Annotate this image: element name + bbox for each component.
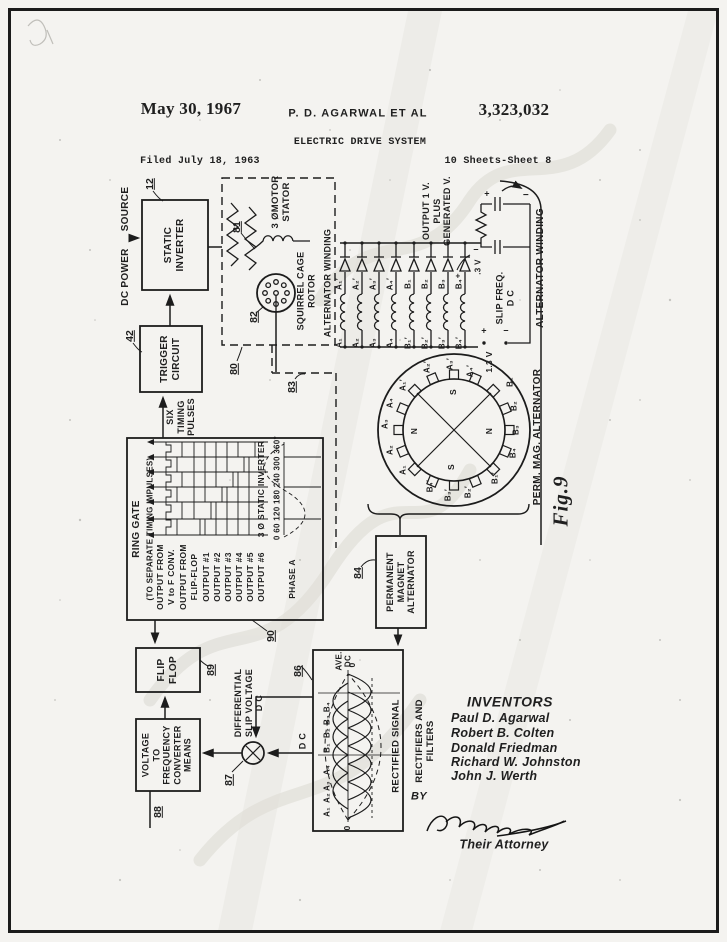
coil-bottom-label: A₄	[385, 338, 394, 348]
rotor-pole-label: B₃′	[443, 489, 452, 501]
wave-phase-label: A₁	[322, 807, 331, 817]
ref-90: 90	[265, 630, 277, 642]
plus-sign: +	[456, 271, 461, 280]
zero-mark: 0	[347, 662, 357, 667]
rotor-pole-label: A₃	[380, 419, 389, 429]
differential-slip-voltage-label: DIFFERENTIAL SLIP VOLTAGE D C	[233, 669, 265, 738]
wave-phase-label: B₂	[322, 728, 331, 738]
output-trace-label: OUTPUT #4	[234, 552, 244, 601]
coil-bottom-label: B₂′	[420, 337, 429, 349]
rotor-pole-label: A₃′	[445, 358, 454, 370]
wave-phase-label: A₃	[322, 781, 331, 791]
rotor-pole-label: B₂′	[463, 486, 472, 498]
plus-sign: +	[481, 326, 487, 337]
wave-phase-label: B₁	[322, 743, 331, 753]
output-voltage-label: OUTPUT 1 V. PLUS GENERATED V.	[421, 176, 453, 246]
rotor-pole-label: A₂′	[422, 361, 431, 373]
point-three-volt-label: .3 V	[473, 259, 482, 274]
zero-mark: 0	[342, 825, 352, 830]
trigger-circuit-box-label: TRIGGER CIRCUIT	[159, 335, 183, 383]
wave-phase-label: A₄	[322, 765, 331, 775]
coil-bottom-label: A₃	[368, 338, 377, 348]
one-point-three-volt-label: 1.3 V	[484, 351, 494, 372]
rotor-pole-label: A₄′	[465, 365, 474, 377]
plus-sign: +	[484, 189, 490, 200]
inventor-name: Robert B. Colten	[451, 726, 554, 741]
coil-top-label: B₃	[437, 279, 446, 289]
rotor-pole-label: B₂	[509, 401, 518, 411]
wave-phase-label: B₄	[322, 702, 331, 712]
perm-mag-alternator-label: PERM. MAG. ALTERNATOR	[532, 369, 544, 505]
output-trace-label: OUTPUT #1	[201, 552, 211, 601]
rotor-pole-label: B₁	[505, 377, 514, 387]
patent-number: 3,323,032	[479, 100, 550, 120]
rotor-pole-label: B₄′	[425, 480, 434, 492]
rotor-pole-label: A₂	[385, 445, 394, 455]
dc-label: D C	[298, 733, 309, 749]
vf-converter-box-label: VOLTAGE TO FREQUENCY CONVERTER MEANS	[140, 725, 193, 784]
coil-bottom-label: A₁	[334, 338, 343, 348]
inventor-name-header: P. D. AGARWAL ET AL	[288, 108, 427, 121]
alternator-winding-right-label: ALTERNATOR WINDING	[535, 208, 547, 328]
degree-scale: 0 60 120 180 240 300 360°	[272, 436, 281, 540]
trace-row-label: FLIP-FLOP	[189, 554, 199, 601]
sheet-count: 10 Sheets-Sheet 8	[444, 156, 551, 168]
rotor-pole-label: B₄	[508, 448, 517, 458]
ref-86: 86	[292, 665, 304, 677]
coil-top-label: A₄′	[385, 278, 394, 290]
figure-number: Fig.9	[549, 475, 574, 526]
output-trace-label: OUTPUT #2	[212, 552, 222, 601]
magnet-pole-letter: S	[448, 389, 458, 395]
magnet-pole-letter: N	[484, 428, 494, 434]
inventor-name: Paul D. Agarwal	[451, 711, 550, 726]
coil-top-label: B₁	[403, 279, 412, 289]
dc-power-label: DC POWER	[120, 248, 132, 305]
ring-gate-title: RING GATE	[131, 500, 143, 558]
ref-80: 80	[228, 363, 240, 375]
ref-12: 12	[144, 178, 156, 190]
coil-top-label: A₂′	[351, 278, 360, 290]
wave-phase-label: B₃	[322, 715, 331, 725]
ring-gate-subtitle: (TO SEPARATE TIMING IMPULSES)	[145, 458, 154, 601]
static-inverter-box-label: STATIC INVERTER	[163, 219, 187, 272]
coil-bottom-label: A₂	[351, 338, 360, 348]
six-timing-pulses-label: SIX TIMING PULSES	[165, 398, 197, 436]
output-trace-label: OUTPUT #3	[223, 552, 233, 601]
ref-87: 87	[223, 774, 235, 786]
coil-top-label: A₁′	[334, 278, 343, 290]
grant-date: May 30, 1967	[141, 99, 241, 119]
static-inverter-trace-label: 3 Ø STATIC INVERTER	[256, 441, 266, 538]
minus-sign: −	[503, 326, 509, 337]
by-label: BY	[411, 791, 427, 804]
ref-81: 81	[231, 221, 243, 233]
rectifiers-filters-label: RECTIFIERS AND FILTERS	[414, 699, 436, 783]
coil-top-label: B₂	[420, 279, 429, 289]
filed-date: Filed July 18, 1963	[140, 156, 260, 168]
inventors-heading: INVENTORS	[467, 694, 553, 711]
minus-sign: −	[473, 245, 479, 256]
flip-flop-box-label: FLIP FLOP	[156, 656, 180, 684]
slip-freq-label: SLIP FREQ. D C	[494, 272, 515, 325]
coil-bottom-label: B₄′	[454, 337, 463, 349]
squirrel-cage-label: SQUIRREL CAGE ROTOR	[295, 252, 316, 331]
trace-row-label: OUTPUT FROM	[155, 544, 165, 610]
inventor-name: John J. Werth	[451, 769, 537, 784]
magnet-pole-letter: N	[409, 428, 419, 434]
wave-phase-label: A₂	[322, 793, 331, 803]
trace-row-label: V to F CONV.	[166, 549, 176, 605]
inventor-name: Richard W. Johnston	[451, 755, 581, 770]
alternator-winding-left-label: ALTERNATOR WINDING	[323, 229, 334, 337]
rotor-pole-label: A₁	[398, 465, 407, 475]
pm-alternator-box-label: PERMANENT MAGNET ALTERNATOR	[385, 550, 417, 614]
ref-83: 83	[286, 381, 298, 393]
rotor-pole-label: A₄	[385, 398, 394, 408]
magnet-pole-letter: S	[446, 464, 456, 470]
rotor-pole-label: B₃	[511, 425, 520, 435]
coil-bottom-label: B₃′	[437, 337, 446, 349]
ref-88: 88	[152, 806, 164, 818]
coil-top-label: A₃′	[368, 278, 377, 290]
rotor-pole-label: A₁′	[398, 379, 407, 391]
rectified-signal-label: RECTIFIED SIGNAL	[390, 699, 401, 792]
ref-82: 82	[248, 311, 260, 323]
output-trace-label: OUTPUT #6	[256, 552, 266, 601]
phase-a-label: PHASE A	[287, 559, 297, 599]
minus-sign: −	[523, 190, 529, 202]
attorney-label: Their Attorney	[459, 838, 548, 853]
rotor-pole-label: B₁′	[490, 472, 499, 484]
motor-stator-label: 3 ØMOTOR STATOR	[270, 176, 292, 229]
source-label: SOURCE	[120, 187, 132, 232]
ref-84: 84	[352, 567, 364, 579]
output-trace-label: OUTPUT #5	[245, 552, 255, 601]
inventor-name: Donald Friedman	[451, 741, 558, 756]
ref-42: 42	[124, 330, 136, 342]
patent-sheet: May 30, 1967 P. D. AGARWAL ET AL 3,323,0…	[0, 0, 727, 942]
trace-row-label: OUTPUT FROM	[178, 544, 188, 610]
ave-dc-label: AVE. DC	[335, 651, 354, 670]
invention-title: ELECTRIC DRIVE SYSTEM	[294, 137, 426, 149]
coil-bottom-label: B₁′	[403, 337, 412, 349]
ref-89: 89	[205, 664, 217, 676]
